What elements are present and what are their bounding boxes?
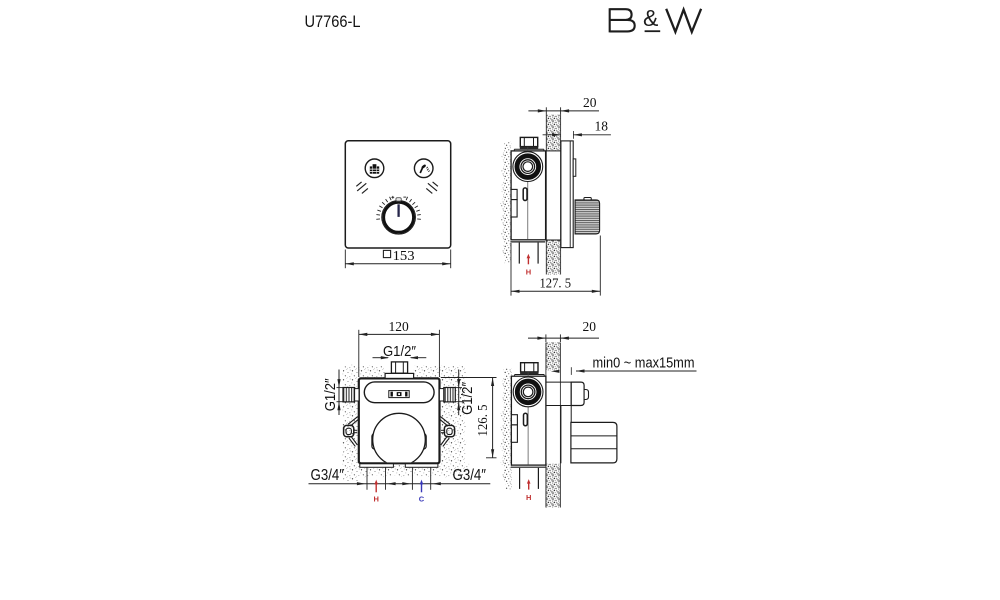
svg-text:&: &	[643, 5, 658, 31]
svg-text:G3/4″: G3/4″	[453, 467, 487, 484]
svg-text:153: 153	[393, 248, 415, 263]
svg-text:H: H	[373, 495, 378, 504]
svg-text:120: 120	[389, 319, 410, 334]
svg-text:G1/2″: G1/2″	[460, 382, 476, 415]
svg-text:18: 18	[595, 119, 609, 134]
svg-text:C: C	[419, 495, 425, 504]
svg-text:min0 ~ max15mm: min0 ~ max15mm	[593, 356, 695, 372]
svg-text:20: 20	[583, 95, 597, 110]
svg-text:U7766-L: U7766-L	[305, 13, 361, 31]
svg-text:G3/4″: G3/4″	[311, 467, 345, 484]
svg-text:G1/2″: G1/2″	[323, 378, 339, 411]
svg-text:126. 5: 126. 5	[475, 404, 490, 436]
svg-text:127. 5: 127. 5	[540, 276, 572, 291]
svg-text:20: 20	[583, 319, 597, 334]
